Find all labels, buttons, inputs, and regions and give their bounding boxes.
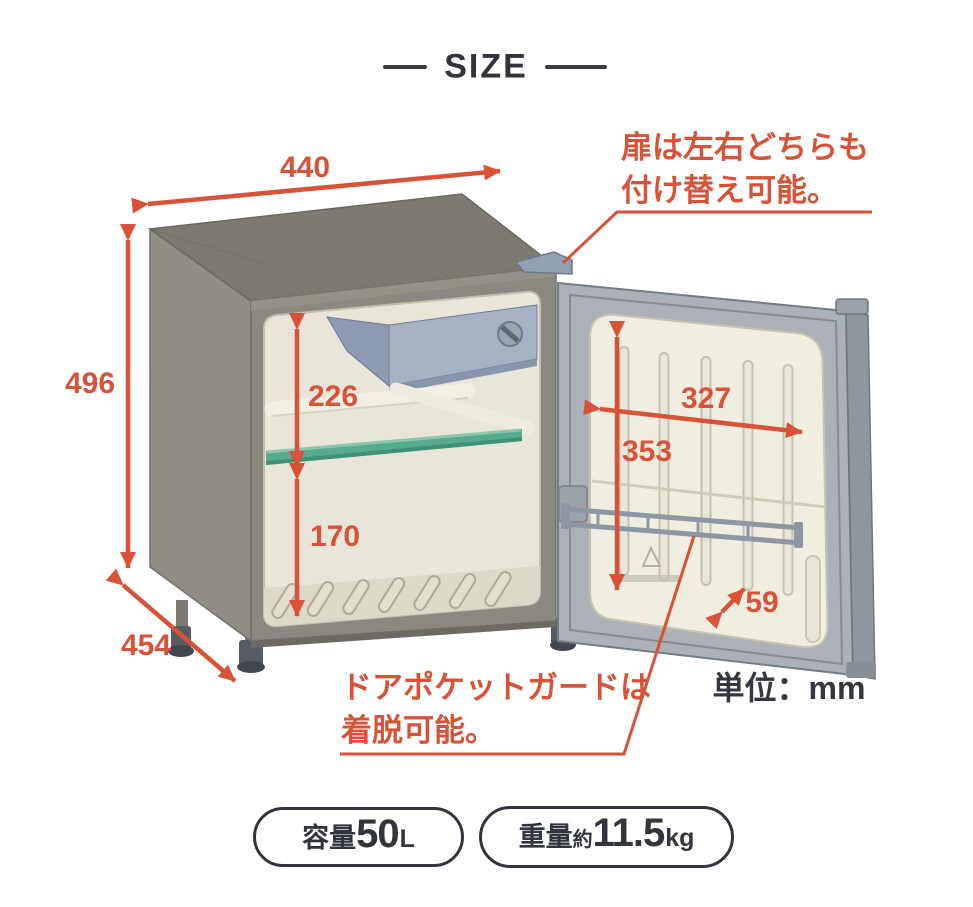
weight-badge: 重量 約 11.5 kg [479,806,734,868]
title-rule-right [545,65,607,69]
door-swap-note-line1: 扉は左右どちらも [621,126,869,169]
page-title: SIZE [444,48,528,87]
capacity-badge-value: 50 [356,810,399,859]
dim-label-door-width: 327 [681,382,731,416]
dim-label-pocket-depth: 59 [745,586,778,620]
door-pocket-note-line1: ドアポケットガードは [341,666,651,709]
fridge-door [558,283,876,679]
weight-badge-value: 11.5 [593,809,665,858]
dim-label-lower-compartment: 170 [310,520,360,554]
unit-label: 単位：mm [713,663,866,709]
capacity-badge-label: 容量 [302,814,356,863]
product-size-figure: SIZE 440 496 454 226 170 327 353 59 扉は左右… [0,0,973,907]
weight-badge-unit: kg [665,814,694,863]
door-swap-leader [563,212,872,263]
door-swap-note: 扉は左右どちらも 付け替え可能。 [621,126,869,212]
capacity-badge-unit: L [400,815,415,864]
door-swap-note-line2: 付け替え可能。 [621,169,869,212]
dim-label-door-height: 353 [622,435,672,469]
weight-badge-label: 重量 [519,813,573,862]
dim-label-upper-compartment: 226 [308,380,358,414]
fine-print [617,575,679,582]
door-pocket-note: ドアポケットガードは 着脱可能。 [341,666,651,752]
fridge-body [150,194,576,673]
weight-badge-approx: 約 [573,816,593,865]
door-pocket-note-line2: 着脱可能。 [341,709,651,752]
capacity-badge: 容量 50 L [253,807,464,867]
dim-label-height: 496 [65,367,115,401]
dim-label-width: 440 [280,151,330,185]
title-rule-left [383,65,427,69]
dim-label-depth: 454 [121,629,171,663]
